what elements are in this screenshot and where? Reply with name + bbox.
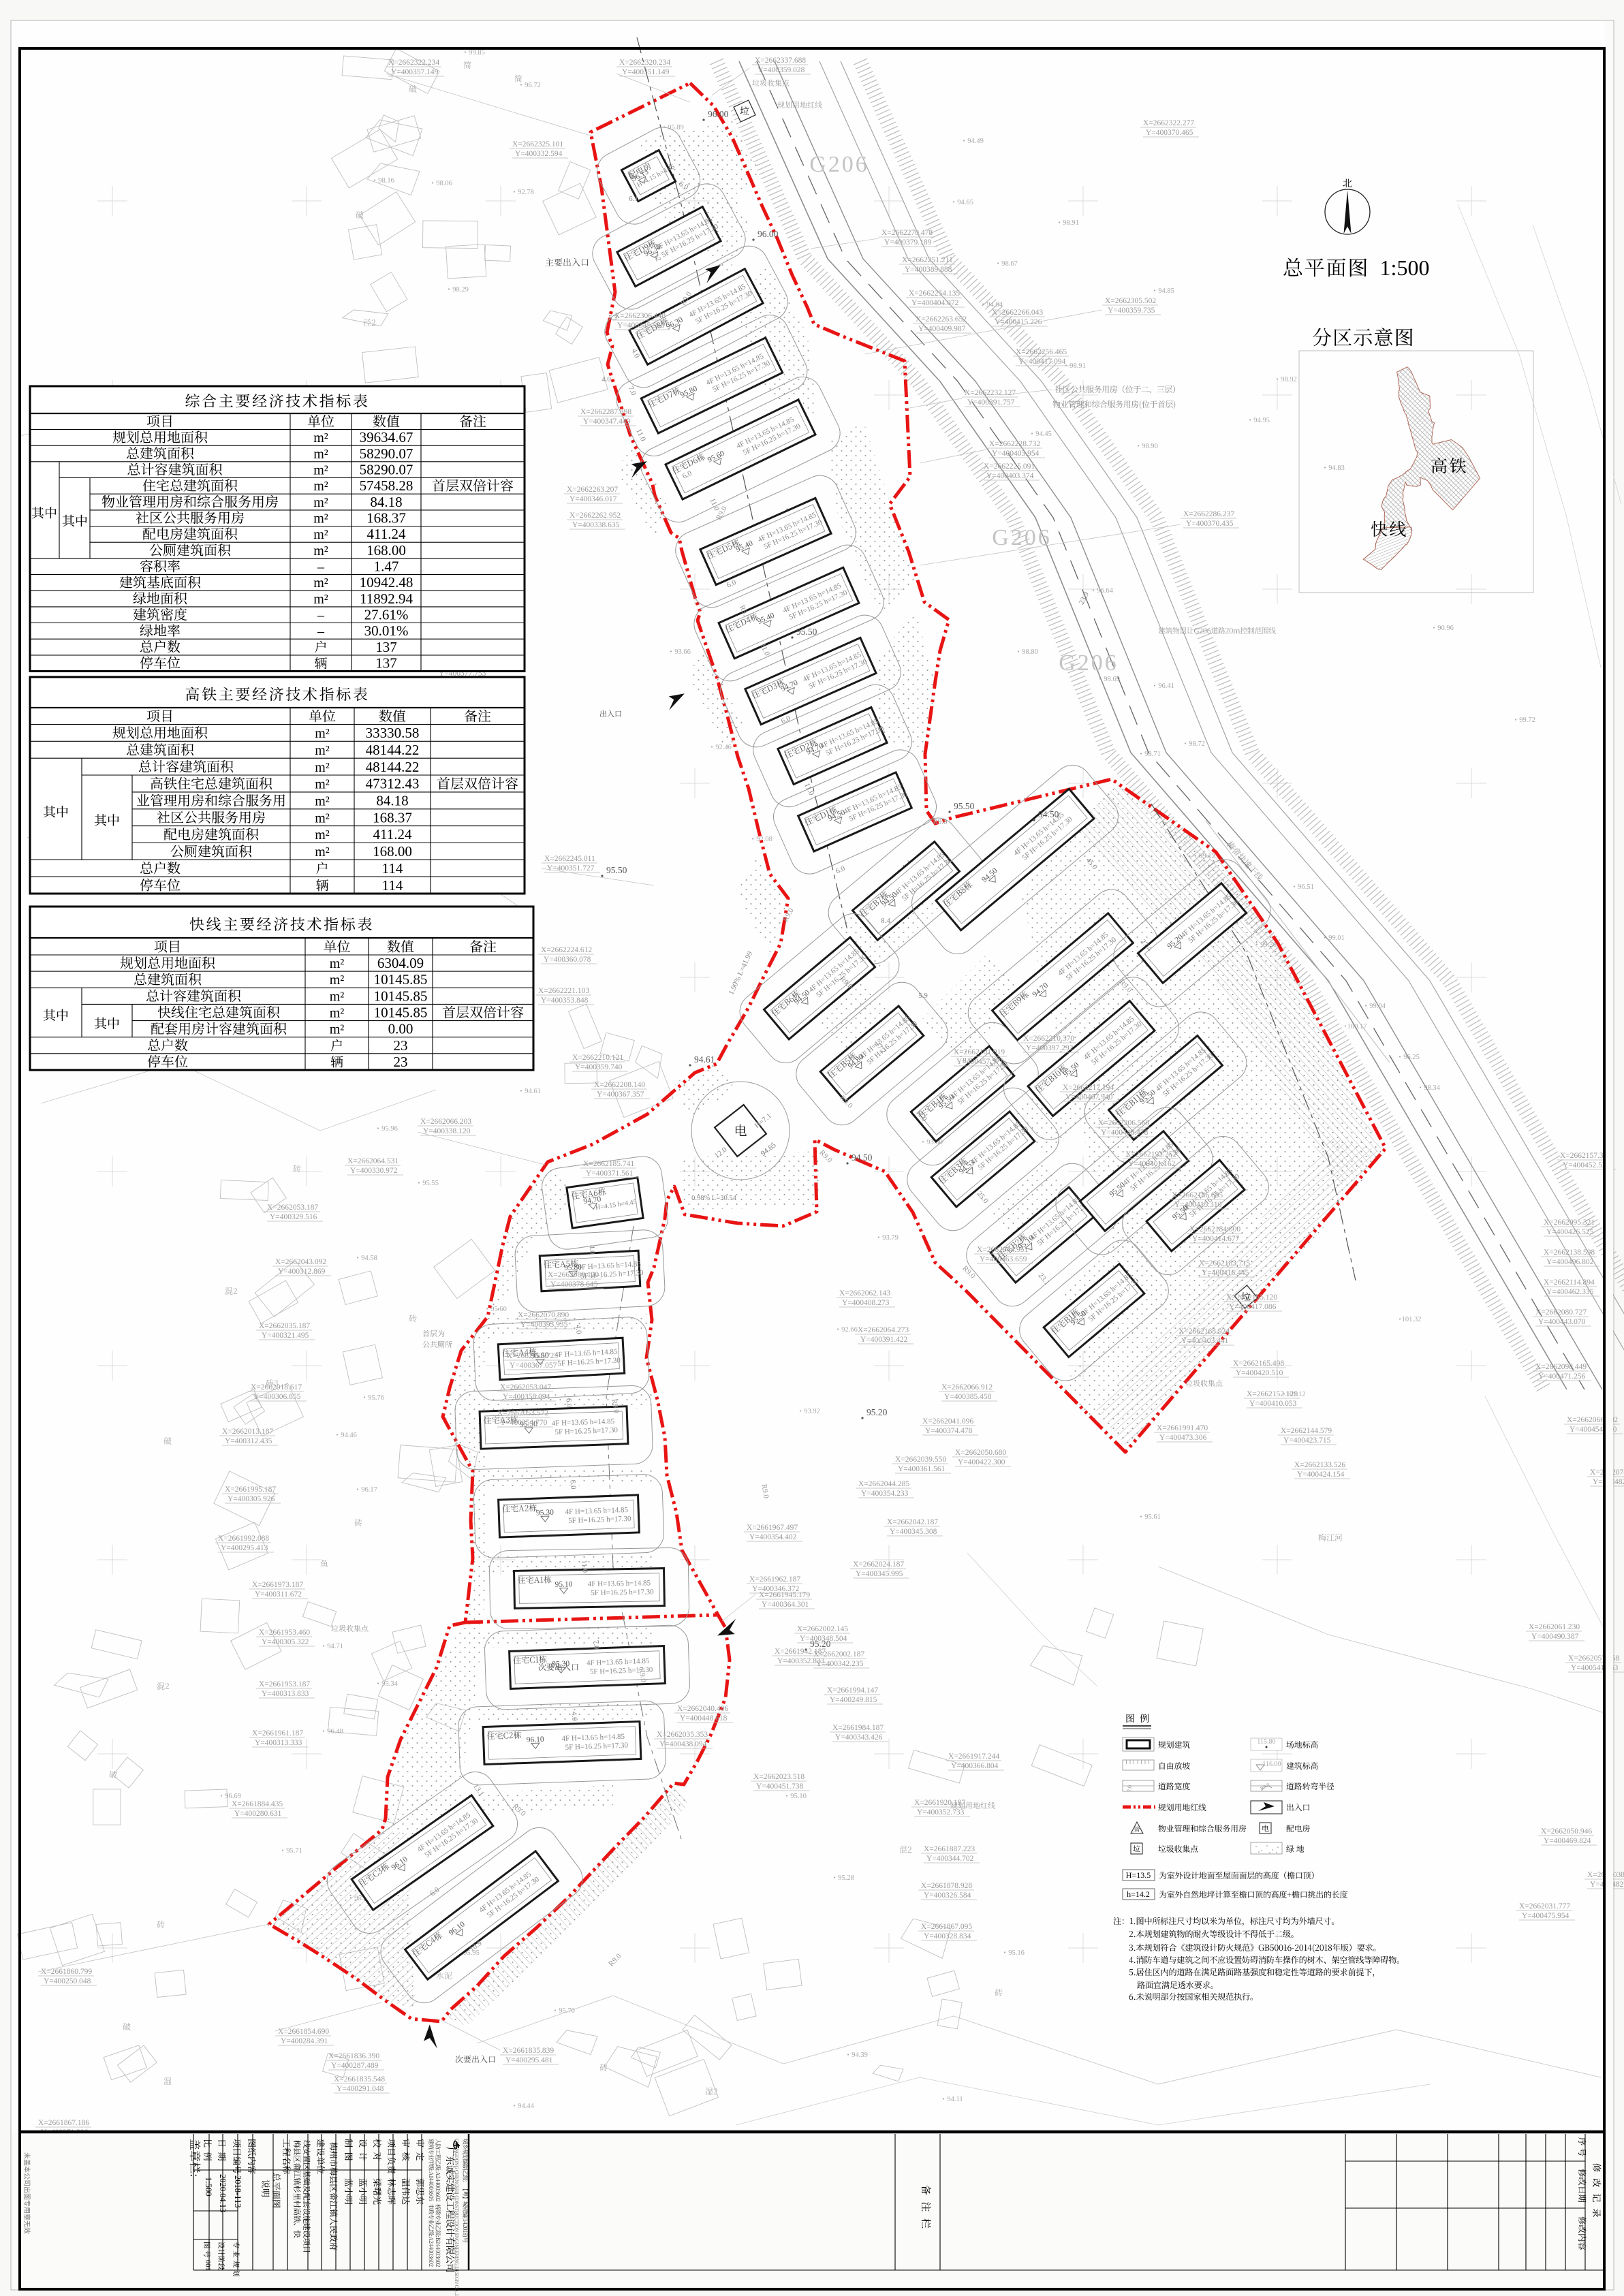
svg-text:Y=400338.120: Y=400338.120 bbox=[423, 1127, 471, 1135]
svg-text:6.0: 6.0 bbox=[564, 1398, 573, 1408]
svg-text:98.91: 98.91 bbox=[1069, 362, 1086, 370]
svg-text:X=2662245.011: X=2662245.011 bbox=[544, 855, 595, 863]
svg-text:Y=400364.301: Y=400364.301 bbox=[762, 1601, 809, 1609]
svg-text:57458.28: 57458.28 bbox=[360, 477, 413, 494]
svg-text:168.00: 168.00 bbox=[373, 843, 412, 860]
svg-text:114: 114 bbox=[382, 860, 403, 877]
svg-text:Y=400354.770: Y=400354.770 bbox=[500, 1419, 548, 1427]
svg-text:X=2662286.237: X=2662286.237 bbox=[1183, 510, 1234, 518]
svg-text:Y=400448.478: Y=400448.478 bbox=[1101, 1129, 1149, 1137]
svg-text:m²: m² bbox=[313, 527, 328, 542]
svg-text:m²: m² bbox=[315, 726, 330, 741]
svg-text:95.89: 95.89 bbox=[668, 124, 684, 131]
svg-text:94.71: 94.71 bbox=[327, 1643, 343, 1650]
svg-text:95.70: 95.70 bbox=[559, 2007, 575, 2015]
svg-text:92.66: 92.66 bbox=[841, 1326, 858, 1334]
svg-text:94.50: 94.50 bbox=[1038, 809, 1059, 819]
svg-text:X=2662023.518: X=2662023.518 bbox=[753, 1773, 805, 1781]
svg-text:95.50: 95.50 bbox=[606, 865, 627, 875]
svg-text:Y=400295.413: Y=400295.413 bbox=[221, 1544, 268, 1552]
svg-text:–: – bbox=[317, 560, 325, 575]
svg-text:X=2662183.715: X=2662183.715 bbox=[1199, 1259, 1250, 1268]
svg-text:X=2662044.951: X=2662044.951 bbox=[977, 1246, 1028, 1254]
svg-text:未盖本公司出图专用章无效: 未盖本公司出图专用章无效 bbox=[22, 2152, 31, 2234]
svg-text:X=2662217.194: X=2662217.194 bbox=[1063, 1084, 1114, 1092]
svg-text:94.65: 94.65 bbox=[957, 199, 973, 206]
svg-text:X=2662210.370: X=2662210.370 bbox=[1023, 1035, 1074, 1043]
svg-text:168.37: 168.37 bbox=[366, 510, 406, 526]
svg-text:Y=400295.481: Y=400295.481 bbox=[505, 2056, 553, 2064]
svg-text:Y=400417.094: Y=400417.094 bbox=[1018, 358, 1066, 366]
svg-text:58290.07: 58290.07 bbox=[360, 445, 413, 462]
svg-text:96.25: 96.25 bbox=[1403, 1054, 1420, 1061]
svg-text:m²: m² bbox=[313, 447, 328, 462]
svg-text:1.47: 1.47 bbox=[374, 559, 399, 575]
svg-text:Y=400345.308: Y=400345.308 bbox=[890, 1528, 937, 1536]
svg-text:84.18: 84.18 bbox=[370, 494, 402, 510]
svg-text:Y=400332.594: Y=400332.594 bbox=[515, 150, 563, 158]
svg-text:Y=400311.672: Y=400311.672 bbox=[255, 1590, 302, 1599]
svg-text:X=2662305.502: X=2662305.502 bbox=[1105, 297, 1156, 305]
svg-text:Y=400473.306: Y=400473.306 bbox=[1159, 1434, 1207, 1442]
svg-text:m²: m² bbox=[330, 1006, 345, 1021]
svg-text:X=2662066.912: X=2662066.912 bbox=[941, 1383, 993, 1391]
svg-text:X=2662039.550: X=2662039.550 bbox=[895, 1456, 946, 1464]
svg-text:X=2662186.685: X=2662186.685 bbox=[1172, 1191, 1223, 1199]
svg-text:Y=400403.954: Y=400403.954 bbox=[992, 450, 1040, 458]
svg-text:48144.22: 48144.22 bbox=[366, 742, 420, 758]
svg-text:Y=400471.256: Y=400471.256 bbox=[1538, 1372, 1586, 1381]
svg-text:Y=400370.435: Y=400370.435 bbox=[1186, 520, 1234, 528]
svg-text:Y=400312.435: Y=400312.435 bbox=[225, 1437, 272, 1445]
svg-text:X=2662035.187: X=2662035.187 bbox=[259, 1322, 310, 1330]
svg-text:6.1: 6.1 bbox=[629, 195, 638, 203]
svg-text:Y=400391.757: Y=400391.757 bbox=[967, 398, 1015, 407]
svg-text:Y=400385.458: Y=400385.458 bbox=[944, 1393, 992, 1401]
svg-text:Y=400403.441: Y=400403.441 bbox=[1181, 1337, 1229, 1345]
svg-text:X=2662095.321: X=2662095.321 bbox=[1544, 1218, 1595, 1227]
svg-text:10145.85: 10145.85 bbox=[374, 1005, 428, 1021]
svg-text:98.16: 98.16 bbox=[378, 177, 394, 185]
svg-text:X=2662002.187: X=2662002.187 bbox=[813, 1650, 864, 1658]
svg-text:23: 23 bbox=[394, 1037, 408, 1054]
svg-text:58290.07: 58290.07 bbox=[360, 462, 413, 478]
svg-text:X=2661836.390: X=2661836.390 bbox=[328, 2052, 379, 2060]
svg-text:X=2662042.187: X=2662042.187 bbox=[887, 1518, 938, 1526]
svg-text:Y=400410.053: Y=400410.053 bbox=[1249, 1400, 1297, 1408]
svg-text:X=2662070.890: X=2662070.890 bbox=[518, 1311, 569, 1319]
svg-text:X=2662225.091: X=2662225.091 bbox=[984, 462, 1035, 471]
svg-text:X=2662152.129: X=2662152.129 bbox=[1247, 1390, 1298, 1398]
svg-text:X=2662287.398: X=2662287.398 bbox=[580, 408, 631, 416]
svg-text:94.39: 94.39 bbox=[852, 2051, 868, 2059]
svg-text:Y=400426.525: Y=400426.525 bbox=[1546, 1228, 1594, 1236]
svg-text:X=2662040.406: X=2662040.406 bbox=[677, 1705, 728, 1713]
svg-text:Y=400280.631: Y=400280.631 bbox=[234, 1810, 282, 1818]
svg-text:X=2662210.121: X=2662210.121 bbox=[572, 1054, 623, 1062]
svg-text:137: 137 bbox=[375, 639, 397, 655]
svg-text:X=2662098.449: X=2662098.449 bbox=[1535, 1363, 1587, 1371]
svg-text:m²: m² bbox=[330, 989, 345, 1004]
svg-text:X=2662256.465: X=2662256.465 bbox=[1016, 348, 1067, 356]
svg-text:X=2662192.252: X=2662192.252 bbox=[1125, 1150, 1176, 1159]
svg-text:X=2661953.187: X=2661953.187 bbox=[259, 1680, 310, 1688]
svg-text:96.00: 96.00 bbox=[758, 229, 779, 239]
svg-text:96.10: 96.10 bbox=[527, 1735, 545, 1744]
svg-text:X=2661961.187: X=2661961.187 bbox=[252, 1729, 303, 1737]
svg-text:Y=400344.702: Y=400344.702 bbox=[926, 1855, 974, 1863]
svg-text:95.96: 95.96 bbox=[381, 1125, 398, 1133]
svg-text:Y=400416.445: Y=400416.445 bbox=[1202, 1269, 1249, 1277]
svg-text:Y=400328.834: Y=400328.834 bbox=[924, 1932, 971, 1940]
svg-text:m²: m² bbox=[315, 811, 330, 825]
svg-text:Y=400359.028: Y=400359.028 bbox=[758, 66, 805, 74]
svg-text:94.61: 94.61 bbox=[525, 1088, 541, 1095]
svg-text:99.85: 99.85 bbox=[469, 49, 485, 57]
svg-text:X=2661973.187: X=2661973.187 bbox=[252, 1581, 303, 1589]
svg-text:95.28: 95.28 bbox=[838, 1874, 854, 1882]
svg-text:Y=400367.357: Y=400367.357 bbox=[597, 1090, 644, 1099]
svg-text:Y=400496.802: Y=400496.802 bbox=[1546, 1258, 1594, 1266]
svg-text:Y=400353.848: Y=400353.848 bbox=[541, 996, 589, 1005]
svg-text:X=2662053.572: X=2662053.572 bbox=[497, 1409, 548, 1417]
svg-text:Y=400393.935: Y=400393.935 bbox=[520, 1321, 568, 1329]
svg-text:X=2661917.244: X=2661917.244 bbox=[948, 1752, 999, 1761]
svg-text:X=2662050.680: X=2662050.680 bbox=[955, 1449, 1006, 1457]
svg-text:94.58: 94.58 bbox=[361, 1255, 377, 1262]
svg-text:X=2662208.140: X=2662208.140 bbox=[594, 1081, 645, 1089]
svg-text:96.51: 96.51 bbox=[1298, 883, 1314, 891]
svg-text:98.72: 98.72 bbox=[1189, 740, 1205, 748]
svg-text:114: 114 bbox=[382, 877, 403, 894]
svg-text:Y=400346.017: Y=400346.017 bbox=[569, 495, 617, 503]
svg-text:Y=400415.226: Y=400415.226 bbox=[995, 318, 1042, 326]
svg-text:X=2662031.777: X=2662031.777 bbox=[1519, 1902, 1570, 1910]
svg-text:X=2662065.723: X=2662065.723 bbox=[507, 1352, 558, 1360]
svg-text:Y=400351.727: Y=400351.727 bbox=[547, 864, 595, 872]
svg-text:Y=400357.149: Y=400357.149 bbox=[391, 68, 439, 76]
svg-text:95.10: 95.10 bbox=[555, 1580, 572, 1588]
svg-text:G206: G206 bbox=[992, 525, 1052, 550]
svg-text:Y=400422.300: Y=400422.300 bbox=[958, 1458, 1005, 1466]
svg-text:10145.85: 10145.85 bbox=[374, 988, 428, 1004]
svg-text:95.34: 95.34 bbox=[381, 1680, 398, 1688]
svg-text:Y=400367.057: Y=400367.057 bbox=[510, 1362, 557, 1370]
svg-text:Y=400438.094: Y=400438.094 bbox=[659, 1740, 707, 1748]
svg-text:93.66: 93.66 bbox=[674, 648, 691, 656]
svg-text:10942.48: 10942.48 bbox=[360, 574, 413, 591]
svg-text:6304.09: 6304.09 bbox=[377, 955, 424, 971]
svg-text:84.18: 84.18 bbox=[376, 793, 408, 809]
svg-text:Y=400403.374: Y=400403.374 bbox=[986, 472, 1034, 480]
svg-text:X=2662080.727: X=2662080.727 bbox=[1535, 1308, 1587, 1317]
svg-text:X=2661953.460: X=2661953.460 bbox=[259, 1629, 310, 1637]
svg-text:94.83: 94.83 bbox=[1328, 465, 1345, 472]
svg-text:98.06: 98.06 bbox=[436, 180, 452, 187]
svg-text:98.71: 98.71 bbox=[1144, 751, 1161, 758]
svg-text:96.48: 96.48 bbox=[327, 1728, 343, 1735]
svg-text:98.92: 98.92 bbox=[1281, 376, 1297, 383]
svg-text:Y=400475.954: Y=400475.954 bbox=[1522, 1912, 1570, 1920]
svg-text:Y=400345.995: Y=400345.995 bbox=[856, 1570, 903, 1578]
svg-text:X=2661867.095: X=2661867.095 bbox=[921, 1923, 972, 1931]
svg-text:X=2661984.187: X=2661984.187 bbox=[832, 1724, 884, 1732]
svg-text:96.41: 96.41 bbox=[1158, 682, 1174, 690]
svg-text:411.24: 411.24 bbox=[373, 826, 412, 843]
svg-text:m²: m² bbox=[313, 544, 328, 559]
svg-text:m²: m² bbox=[330, 1022, 345, 1037]
svg-text:X=2661991.470: X=2661991.470 bbox=[1157, 1424, 1208, 1432]
svg-text:X=2662041.096: X=2662041.096 bbox=[922, 1417, 973, 1426]
svg-text:33330.58: 33330.58 bbox=[366, 725, 420, 741]
svg-text:Y=400366.804: Y=400366.804 bbox=[951, 1762, 999, 1770]
svg-text:4.0: 4.0 bbox=[569, 1711, 578, 1721]
svg-text:Y=400305.322: Y=400305.322 bbox=[262, 1638, 309, 1646]
svg-text:95.76: 95.76 bbox=[368, 1394, 384, 1402]
svg-text:93.79: 93.79 bbox=[882, 1234, 899, 1242]
svg-text:Y=400249.815: Y=400249.815 bbox=[830, 1696, 877, 1704]
svg-text:Y=400370.465: Y=400370.465 bbox=[1146, 129, 1193, 137]
svg-text:m²: m² bbox=[330, 956, 345, 971]
svg-text:116.00: 116.00 bbox=[1262, 1761, 1281, 1768]
svg-text:0.00: 0.00 bbox=[388, 1021, 413, 1037]
svg-text:Y=400417.086: Y=400417.086 bbox=[1229, 1303, 1277, 1311]
svg-text:X=2661995.187: X=2661995.187 bbox=[225, 1485, 276, 1494]
svg-text:X=2662306.448: X=2662306.448 bbox=[614, 312, 666, 320]
svg-text:92.78: 92.78 bbox=[518, 189, 534, 196]
svg-text:4.0: 4.0 bbox=[587, 1244, 596, 1255]
svg-text:X=2661884.435: X=2661884.435 bbox=[232, 1800, 283, 1808]
svg-text:92.08: 92.08 bbox=[756, 836, 772, 843]
svg-text:X=2662337.688: X=2662337.688 bbox=[755, 57, 806, 65]
svg-text:Y=400414.677: Y=400414.677 bbox=[1192, 1235, 1240, 1243]
svg-text:Y=400397.292: Y=400397.292 bbox=[1026, 1044, 1074, 1052]
svg-text:Y=400291.048: Y=400291.048 bbox=[337, 2085, 384, 2093]
svg-text:Y=400313.333: Y=400313.333 bbox=[255, 1739, 302, 1747]
svg-text:Y=400330.972: Y=400330.972 bbox=[350, 1167, 398, 1175]
svg-text:X=2662251.211: X=2662251.211 bbox=[902, 256, 953, 264]
svg-text:X=2662224.612: X=2662224.612 bbox=[541, 946, 592, 954]
svg-text:m²: m² bbox=[313, 576, 328, 591]
svg-text:X=2662144.579: X=2662144.579 bbox=[1281, 1427, 1332, 1435]
svg-text:X=2661994.147: X=2661994.147 bbox=[827, 1686, 878, 1695]
svg-text:X=2662114.894: X=2662114.894 bbox=[1544, 1278, 1595, 1287]
svg-text:X=2662053.187: X=2662053.187 bbox=[267, 1204, 318, 1212]
svg-text:–: – bbox=[317, 624, 325, 639]
svg-text:X=2662043.092: X=2662043.092 bbox=[275, 1258, 326, 1266]
svg-text:X=2662270.478: X=2662270.478 bbox=[881, 229, 933, 237]
svg-text:m²: m² bbox=[330, 973, 345, 988]
svg-text:X=2662168.924: X=2662168.924 bbox=[1178, 1327, 1230, 1336]
svg-text:X=2662165.498: X=2662165.498 bbox=[1233, 1359, 1284, 1368]
svg-text:94.11: 94.11 bbox=[947, 2096, 963, 2103]
svg-text:X=2661962.187: X=2661962.187 bbox=[749, 1575, 800, 1584]
svg-text:95.50: 95.50 bbox=[954, 801, 975, 811]
svg-text:30.01%: 30.01% bbox=[364, 623, 409, 639]
svg-text:98.90: 98.90 bbox=[1142, 443, 1158, 450]
svg-text:Y=400342.235: Y=400342.235 bbox=[816, 1660, 864, 1668]
svg-text:X=2662322.234: X=2662322.234 bbox=[388, 59, 439, 67]
svg-text:168.37: 168.37 bbox=[373, 809, 412, 825]
svg-text:G206: G206 bbox=[1059, 650, 1119, 676]
svg-text:11.0: 11.0 bbox=[580, 1560, 589, 1573]
svg-text:Y=400409.987: Y=400409.987 bbox=[918, 325, 966, 333]
svg-text:X=2662050.946: X=2662050.946 bbox=[1541, 1827, 1592, 1836]
svg-text:R9.0: R9.0 bbox=[933, 818, 948, 826]
svg-text:99.72: 99.72 bbox=[1519, 717, 1535, 724]
svg-text:94.45: 94.45 bbox=[1035, 430, 1052, 438]
svg-text:Y=400463.659: Y=400463.659 bbox=[980, 1255, 1027, 1263]
svg-text:X=2662035.353: X=2662035.353 bbox=[657, 1731, 708, 1739]
svg-text:Y=400352.733: Y=400352.733 bbox=[917, 1808, 965, 1817]
svg-text:98.29: 98.29 bbox=[452, 286, 469, 294]
svg-text:Y=400306.855: Y=400306.855 bbox=[253, 1393, 301, 1401]
svg-text:X=2662133.526: X=2662133.526 bbox=[1294, 1461, 1345, 1469]
svg-text:98.67: 98.67 bbox=[1001, 260, 1018, 268]
svg-text:98.80: 98.80 bbox=[1022, 648, 1038, 656]
svg-text:X=2662184.000: X=2662184.000 bbox=[1189, 1225, 1240, 1233]
svg-text:m²: m² bbox=[313, 592, 328, 607]
svg-text:Y=400415.310: Y=400415.310 bbox=[1174, 1201, 1222, 1209]
svg-text:94.46: 94.46 bbox=[341, 1432, 357, 1439]
svg-text:X=2661835.839: X=2661835.839 bbox=[503, 2047, 554, 2055]
svg-text:Y=400250.048: Y=400250.048 bbox=[44, 1977, 91, 1985]
svg-text:X=2662101.919: X=2662101.919 bbox=[954, 1048, 1005, 1056]
svg-text:X=2662024.187: X=2662024.187 bbox=[853, 1560, 904, 1569]
svg-text:–: – bbox=[317, 608, 325, 623]
svg-text:93.92: 93.92 bbox=[804, 1408, 820, 1415]
svg-text:Y=400401.162: Y=400401.162 bbox=[1128, 1160, 1176, 1168]
svg-text:Y=400490.387: Y=400490.387 bbox=[1531, 1633, 1579, 1641]
svg-text:Y=400379.189: Y=400379.189 bbox=[884, 238, 932, 247]
svg-text:94.49: 94.49 bbox=[967, 138, 984, 145]
svg-text:m²: m² bbox=[313, 430, 328, 445]
svg-text:98.91: 98.91 bbox=[1063, 219, 1079, 227]
svg-text:95.50: 95.50 bbox=[796, 627, 817, 637]
svg-text:Y=400348.504: Y=400348.504 bbox=[800, 1635, 847, 1643]
svg-text:90.96: 90.96 bbox=[1437, 625, 1454, 632]
svg-text:1:500: 1:500 bbox=[204, 2177, 213, 2196]
svg-text:X=2662206.560: X=2662206.560 bbox=[1098, 1119, 1149, 1127]
svg-text:95.16: 95.16 bbox=[1008, 1949, 1025, 1957]
svg-text:39634.67: 39634.67 bbox=[360, 429, 413, 445]
svg-text:X=2662044.285: X=2662044.285 bbox=[858, 1480, 909, 1488]
svg-text:Y=400329.516: Y=400329.516 bbox=[270, 1213, 317, 1221]
svg-text:X=2661920.187: X=2661920.187 bbox=[914, 1799, 965, 1807]
svg-text:Y=400343.426: Y=400343.426 bbox=[835, 1733, 883, 1742]
svg-text:X=2661860.799: X=2661860.799 bbox=[41, 1968, 92, 1976]
svg-text:X=2662061.230: X=2662061.230 bbox=[1529, 1623, 1580, 1631]
svg-text:X=2661835.548: X=2661835.548 bbox=[334, 2075, 385, 2083]
svg-text:10145.85: 10145.85 bbox=[374, 971, 428, 988]
svg-text:X=2662002.145: X=2662002.145 bbox=[797, 1625, 848, 1633]
svg-text:7.0: 7.0 bbox=[591, 1639, 600, 1650]
svg-text:Y=400423.715: Y=400423.715 bbox=[1283, 1436, 1331, 1445]
svg-text:X=2662221.103: X=2662221.103 bbox=[538, 987, 589, 995]
svg-text:Y=400389.888: Y=400389.888 bbox=[905, 266, 952, 274]
svg-text:5F H=16.25 h=17.30: 5F H=16.25 h=17.30 bbox=[591, 1588, 654, 1597]
svg-text:X=2662165.120: X=2662165.120 bbox=[1226, 1293, 1277, 1302]
svg-text:H=13.5: H=13.5 bbox=[1126, 1870, 1151, 1880]
svg-text:96.69: 96.69 bbox=[225, 1793, 241, 1800]
svg-text:411.24: 411.24 bbox=[367, 526, 406, 542]
svg-text:137: 137 bbox=[375, 655, 397, 672]
svg-text:2018-113: 2018-113 bbox=[233, 2175, 243, 2207]
svg-text:Y=400345.588: Y=400345.588 bbox=[617, 321, 665, 330]
svg-text:X=2662232.127: X=2662232.127 bbox=[965, 389, 1016, 397]
svg-text:X=2661878.928: X=2661878.928 bbox=[921, 1882, 972, 1890]
svg-text:Y=400469.824: Y=400469.824 bbox=[1544, 1837, 1591, 1845]
svg-text:Y=400287.489: Y=400287.489 bbox=[331, 2062, 379, 2070]
svg-text:m²: m² bbox=[315, 794, 330, 809]
svg-text:Y=400391.422: Y=400391.422 bbox=[860, 1336, 908, 1344]
svg-text:G206: G206 bbox=[809, 152, 869, 177]
svg-text:X=2662053.047: X=2662053.047 bbox=[500, 1383, 551, 1391]
svg-text:001: 001 bbox=[204, 2260, 211, 2271]
svg-text:168.00: 168.00 bbox=[366, 542, 406, 559]
svg-text:X=2662062.143: X=2662062.143 bbox=[839, 1289, 890, 1298]
svg-text:X=2661854.690: X=2661854.690 bbox=[278, 2028, 329, 2036]
svg-text:95.20: 95.20 bbox=[866, 1407, 888, 1417]
svg-text:X=2662013.187: X=2662013.187 bbox=[222, 1428, 273, 1436]
svg-text:Y=400305.926: Y=400305.926 bbox=[228, 1495, 275, 1503]
svg-text:X=2662066.203: X=2662066.203 bbox=[420, 1118, 471, 1126]
svg-text:m²: m² bbox=[315, 777, 330, 792]
svg-text:1:500: 1:500 bbox=[1380, 255, 1430, 280]
svg-text:95.71: 95.71 bbox=[286, 1847, 302, 1855]
svg-text:m²: m² bbox=[313, 495, 328, 510]
svg-text:Y=400347.449: Y=400347.449 bbox=[583, 418, 631, 426]
svg-text:X=2661887.223: X=2661887.223 bbox=[924, 1845, 975, 1853]
svg-text:X=2662018.617: X=2662018.617 bbox=[251, 1383, 302, 1391]
svg-text:Y=400359.735: Y=400359.735 bbox=[1108, 306, 1155, 315]
svg-text:X=2662262.952: X=2662262.952 bbox=[569, 512, 621, 520]
svg-text:Y=400313.833: Y=400313.833 bbox=[262, 1690, 309, 1698]
svg-text:Y=400408.273: Y=400408.273 bbox=[842, 1299, 890, 1307]
svg-text:Y=400424.154: Y=400424.154 bbox=[1297, 1471, 1345, 1479]
svg-text:96.17: 96.17 bbox=[361, 1486, 377, 1494]
svg-text:94.85: 94.85 bbox=[1158, 287, 1174, 295]
svg-text:96.00: 96.00 bbox=[708, 109, 729, 119]
svg-text:Y=400321.495: Y=400321.495 bbox=[262, 1332, 309, 1340]
svg-text:23: 23 bbox=[394, 1054, 408, 1070]
svg-text:6.0: 6.0 bbox=[568, 1479, 577, 1490]
svg-text:4F H=13.65 h=14.85: 4F H=13.65 h=14.85 bbox=[588, 1579, 651, 1588]
svg-text:Y=400448.618: Y=400448.618 bbox=[680, 1714, 728, 1723]
svg-text:115.80: 115.80 bbox=[1257, 1738, 1275, 1746]
svg-text:Y=400360.078: Y=400360.078 bbox=[544, 956, 591, 964]
svg-text:Y=400378.645: Y=400378.645 bbox=[550, 1280, 598, 1289]
svg-text:Y=400359.740: Y=400359.740 bbox=[575, 1063, 623, 1071]
svg-text:Y=400361.561: Y=400361.561 bbox=[898, 1465, 946, 1473]
svg-text:5.9: 5.9 bbox=[918, 992, 928, 1000]
svg-text:X=2662185.741: X=2662185.741 bbox=[583, 1160, 634, 1168]
svg-text:Y=400312.869: Y=400312.869 bbox=[278, 1268, 326, 1276]
svg-text:Y=400326.584: Y=400326.584 bbox=[924, 1891, 971, 1900]
svg-text:27.61%: 27.61% bbox=[364, 607, 409, 623]
svg-text:11892.94: 11892.94 bbox=[360, 591, 413, 607]
svg-text:99.01: 99.01 bbox=[1328, 934, 1345, 942]
svg-text:94.61: 94.61 bbox=[694, 1054, 715, 1065]
svg-text:m²: m² bbox=[313, 463, 328, 478]
svg-text:X=2662228.732: X=2662228.732 bbox=[989, 440, 1040, 448]
svg-text:95.30: 95.30 bbox=[536, 1509, 555, 1517]
svg-text:95.55: 95.55 bbox=[422, 1180, 439, 1187]
svg-text:X=2662089.120: X=2662089.120 bbox=[548, 1271, 599, 1279]
svg-text:4.0: 4.0 bbox=[574, 1324, 582, 1334]
svg-text:X=2661967.497: X=2661967.497 bbox=[747, 1524, 798, 1532]
svg-text:Y=400354.402: Y=400354.402 bbox=[749, 1533, 797, 1541]
